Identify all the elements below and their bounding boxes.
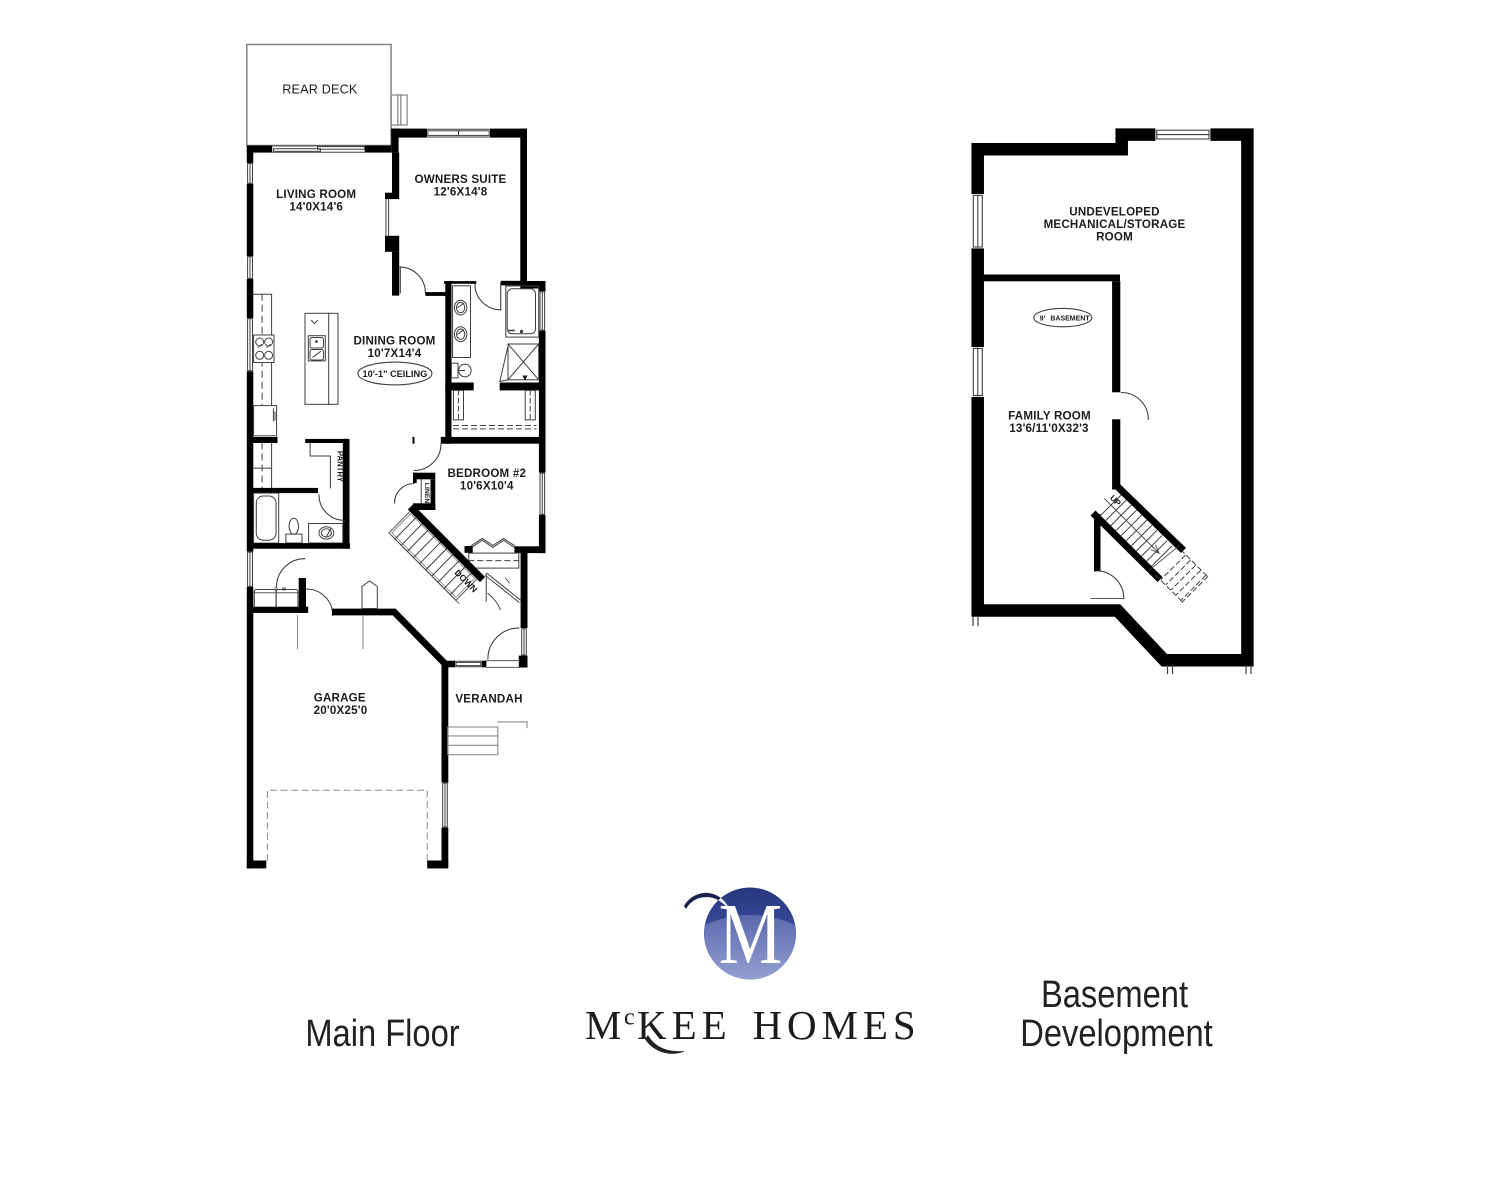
svg-text:OWNERS SUITE: OWNERS SUITE — [415, 173, 507, 186]
svg-text:10'-1" CEILING: 10'-1" CEILING — [363, 369, 428, 379]
svg-text:BASEMENT: BASEMENT — [1050, 315, 1090, 322]
svg-text:ROOM: ROOM — [1096, 231, 1133, 244]
svg-text:LINEN: LINEN — [423, 483, 430, 503]
svg-text:FAMILY ROOM: FAMILY ROOM — [1008, 410, 1091, 423]
svg-text:BEDROOM #2: BEDROOM #2 — [447, 467, 526, 480]
svg-text:9': 9' — [1040, 315, 1046, 322]
svg-text:DINING ROOM: DINING ROOM — [353, 335, 435, 348]
svg-text:10'6X10'4: 10'6X10'4 — [460, 480, 514, 493]
svg-text:VERANDAH: VERANDAH — [455, 693, 522, 706]
svg-text:LIVING ROOM: LIVING ROOM — [276, 188, 356, 201]
svg-text:14'0X14'6: 14'0X14'6 — [289, 201, 343, 214]
svg-text:Basement: Basement — [1041, 973, 1188, 1016]
svg-text:10'7X14'4: 10'7X14'4 — [368, 347, 422, 360]
svg-text:PANTRY: PANTRY — [336, 451, 345, 483]
svg-text:MECHANICAL/STORAGE: MECHANICAL/STORAGE — [1044, 218, 1186, 231]
svg-text:20'0X25'0: 20'0X25'0 — [314, 704, 368, 717]
svg-text:W: W — [282, 587, 287, 592]
svg-text:HOMES: HOMES — [753, 1002, 921, 1048]
svg-text:GARAGE: GARAGE — [314, 692, 366, 705]
svg-text:13'6/11'0X32'3: 13'6/11'0X32'3 — [1009, 422, 1089, 435]
svg-text:Development: Development — [1020, 1012, 1213, 1055]
svg-text:REAR DECK: REAR DECK — [282, 83, 358, 97]
svg-text:c: c — [624, 1005, 635, 1031]
svg-text:UNDEVELOPED: UNDEVELOPED — [1069, 206, 1159, 219]
svg-text:Main Floor: Main Floor — [305, 1012, 459, 1055]
svg-text:M: M — [585, 1002, 621, 1048]
svg-text:M: M — [719, 886, 782, 982]
svg-text:12'6X14'8: 12'6X14'8 — [434, 186, 488, 199]
